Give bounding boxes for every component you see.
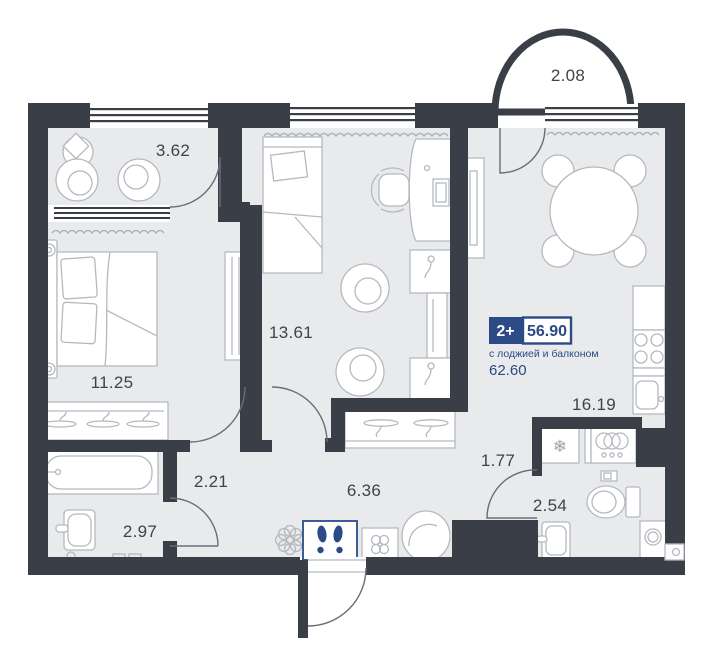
door-entry (308, 568, 366, 626)
floor-plan: ❄ (0, 0, 711, 660)
label-balcony-left: 3.62 (156, 141, 190, 160)
label-corridor: 6.36 (347, 481, 381, 500)
vent-box (665, 544, 684, 560)
dining-set (542, 155, 646, 267)
hob-unit (585, 428, 636, 463)
armchair-2 (336, 348, 384, 396)
single-bed (263, 137, 322, 273)
living-tv (466, 158, 484, 258)
label-children-room: 13.61 (269, 323, 313, 342)
wardrobe-right-2 (410, 358, 452, 400)
tv-panel (427, 293, 447, 358)
wardrobe-hangers (40, 402, 168, 440)
label-kitchen-living: 16.19 (572, 395, 616, 414)
label-bathroom: 2.97 (123, 522, 157, 541)
label-wc: 2.54 (533, 496, 567, 515)
badge-area-main: 56.90 (527, 323, 567, 340)
desk (409, 139, 452, 241)
badge-rooms-label: 2+ (496, 323, 514, 340)
badge-area-total: 62.60 (489, 362, 527, 379)
label-hall-small: 1.77 (481, 451, 515, 470)
kitchen-counter (633, 286, 665, 414)
label-bedroom: 11.25 (91, 373, 134, 392)
double-bed (42, 240, 157, 378)
fridge: ❄ (541, 428, 579, 463)
entrance-mat (303, 521, 357, 560)
entry-threshold (308, 557, 366, 575)
label-hallway: 2.21 (194, 472, 228, 491)
shoe-cabinet (362, 528, 398, 560)
badge-area-note: с лоджией и балконом (489, 348, 599, 360)
wardrobe-right-1 (410, 250, 452, 293)
washing-machine (640, 521, 667, 559)
label-balcony-top: 2.08 (551, 66, 585, 85)
floor-plan-svg: ❄ (0, 0, 711, 660)
bathtub (40, 451, 158, 494)
fridge-snowflake-icon: ❄ (553, 437, 567, 457)
armchair-1 (341, 264, 389, 312)
wc-sink (537, 522, 570, 559)
pouf (402, 511, 450, 561)
coat-rack (345, 410, 455, 448)
